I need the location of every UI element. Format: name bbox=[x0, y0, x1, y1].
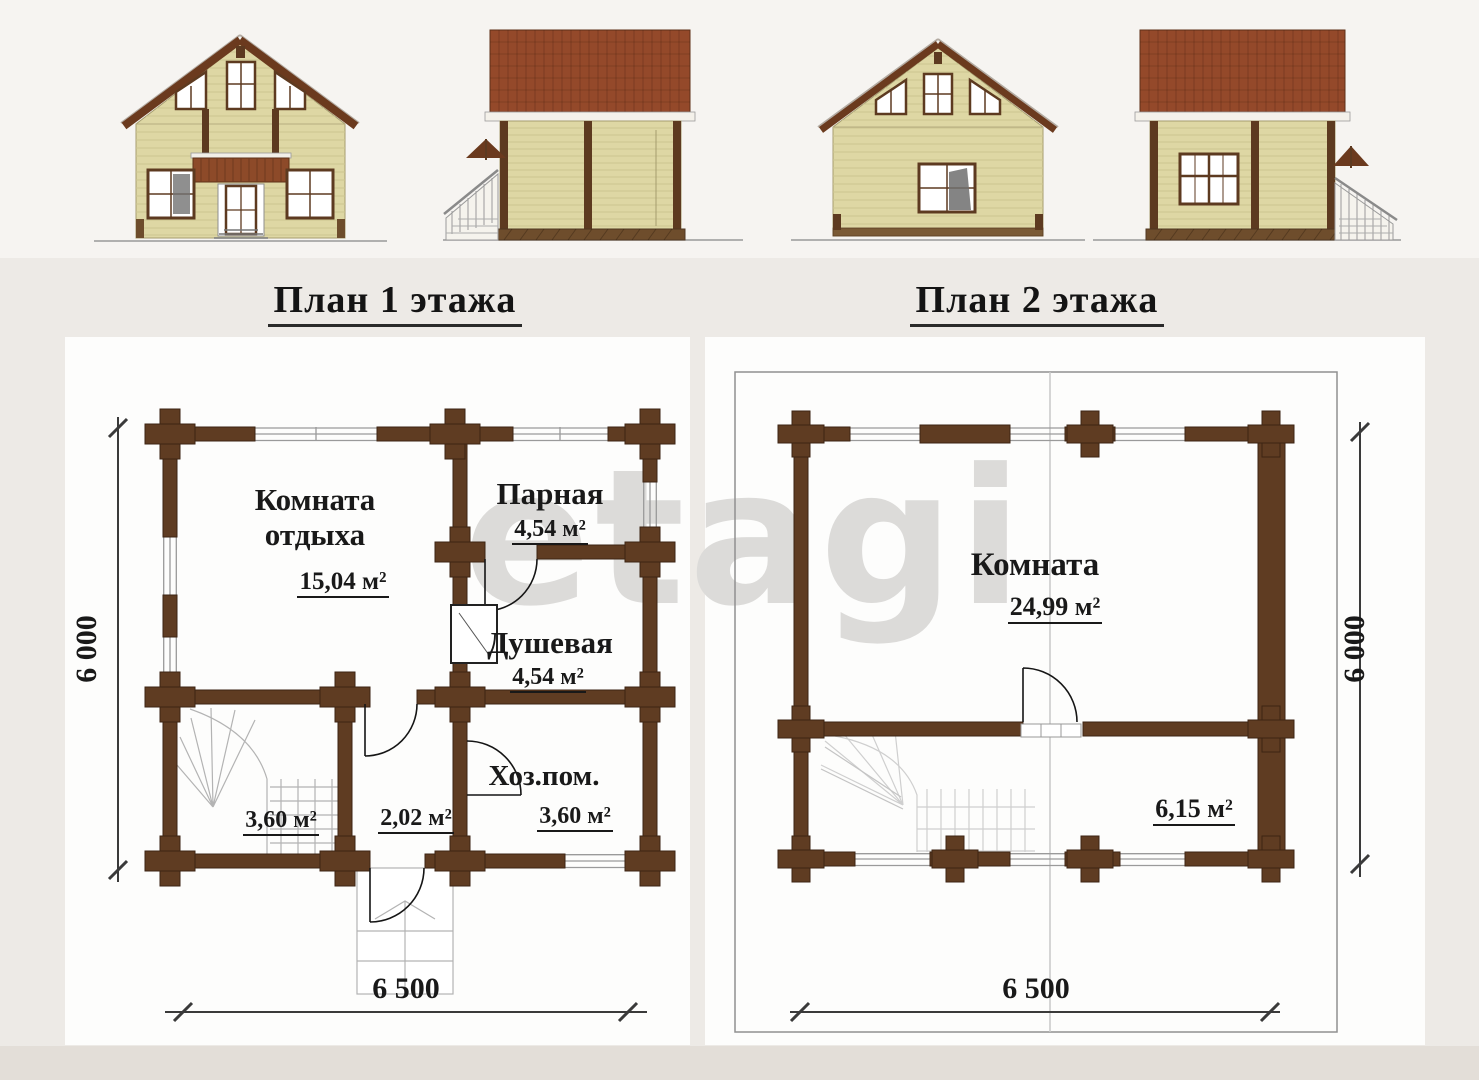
floor-plan-2-drawing bbox=[705, 337, 1425, 1045]
lower-window bbox=[919, 164, 975, 212]
wall bbox=[500, 121, 681, 229]
wall bbox=[1150, 121, 1335, 229]
window bbox=[1180, 154, 1238, 204]
fascia bbox=[1135, 112, 1350, 121]
plan2-height-dimension: 6 000 bbox=[1338, 584, 1372, 714]
room-area-lounge: 15,04 м² bbox=[248, 568, 438, 596]
room-area-landing: 6,15 м² bbox=[1102, 794, 1286, 823]
base bbox=[496, 229, 685, 240]
roof bbox=[490, 30, 690, 112]
entry-door bbox=[218, 184, 264, 236]
plan1-width-dimension: 6 500 bbox=[318, 972, 494, 1006]
plan2-title: План 2 этажа bbox=[857, 278, 1217, 322]
page: План 1 этажа План 2 этажа etagi bbox=[0, 0, 1479, 1080]
fascia bbox=[485, 112, 695, 121]
room-label-utility: Хоз.пом. bbox=[438, 760, 650, 792]
bottom-strip bbox=[0, 1046, 1479, 1080]
plan1-title: План 1 этажа bbox=[215, 278, 575, 322]
room-label-steam: Парная bbox=[442, 477, 658, 512]
rear-elevation-drawing bbox=[783, 22, 1093, 247]
plan2-door bbox=[1021, 668, 1081, 737]
entry-hood bbox=[1333, 146, 1369, 168]
room-area-hall: 2,02 м² bbox=[332, 805, 500, 832]
room-area-utility: 3,60 м² bbox=[492, 803, 658, 830]
porch-stairs bbox=[1335, 178, 1397, 240]
plan2-frame bbox=[735, 372, 1337, 1032]
plan2-width-dimension: 6 500 bbox=[948, 972, 1124, 1006]
room-label-shower: Душевая bbox=[443, 626, 657, 661]
side-elevation-right-stairs-drawing bbox=[1083, 18, 1408, 248]
room-area-room2: 24,99 м² bbox=[952, 592, 1158, 621]
base bbox=[1146, 229, 1339, 240]
plan1-height-dimension: 6 000 bbox=[70, 584, 104, 714]
room-label-lounge: Комната отдыха bbox=[202, 483, 428, 552]
front-elevation-drawing bbox=[88, 14, 393, 249]
plan2-stairs bbox=[821, 730, 1035, 852]
side-elevation-left-stairs-drawing bbox=[438, 18, 748, 248]
room-area-shower: 4,54 м² bbox=[458, 664, 638, 691]
floor-plan-1-drawing bbox=[65, 337, 690, 1045]
room-area-steam: 4,54 м² bbox=[462, 516, 638, 543]
porch-stairs bbox=[444, 170, 498, 240]
roof bbox=[1140, 30, 1345, 112]
room-label-room2: Комната bbox=[922, 547, 1148, 584]
porch-roof bbox=[191, 153, 291, 182]
